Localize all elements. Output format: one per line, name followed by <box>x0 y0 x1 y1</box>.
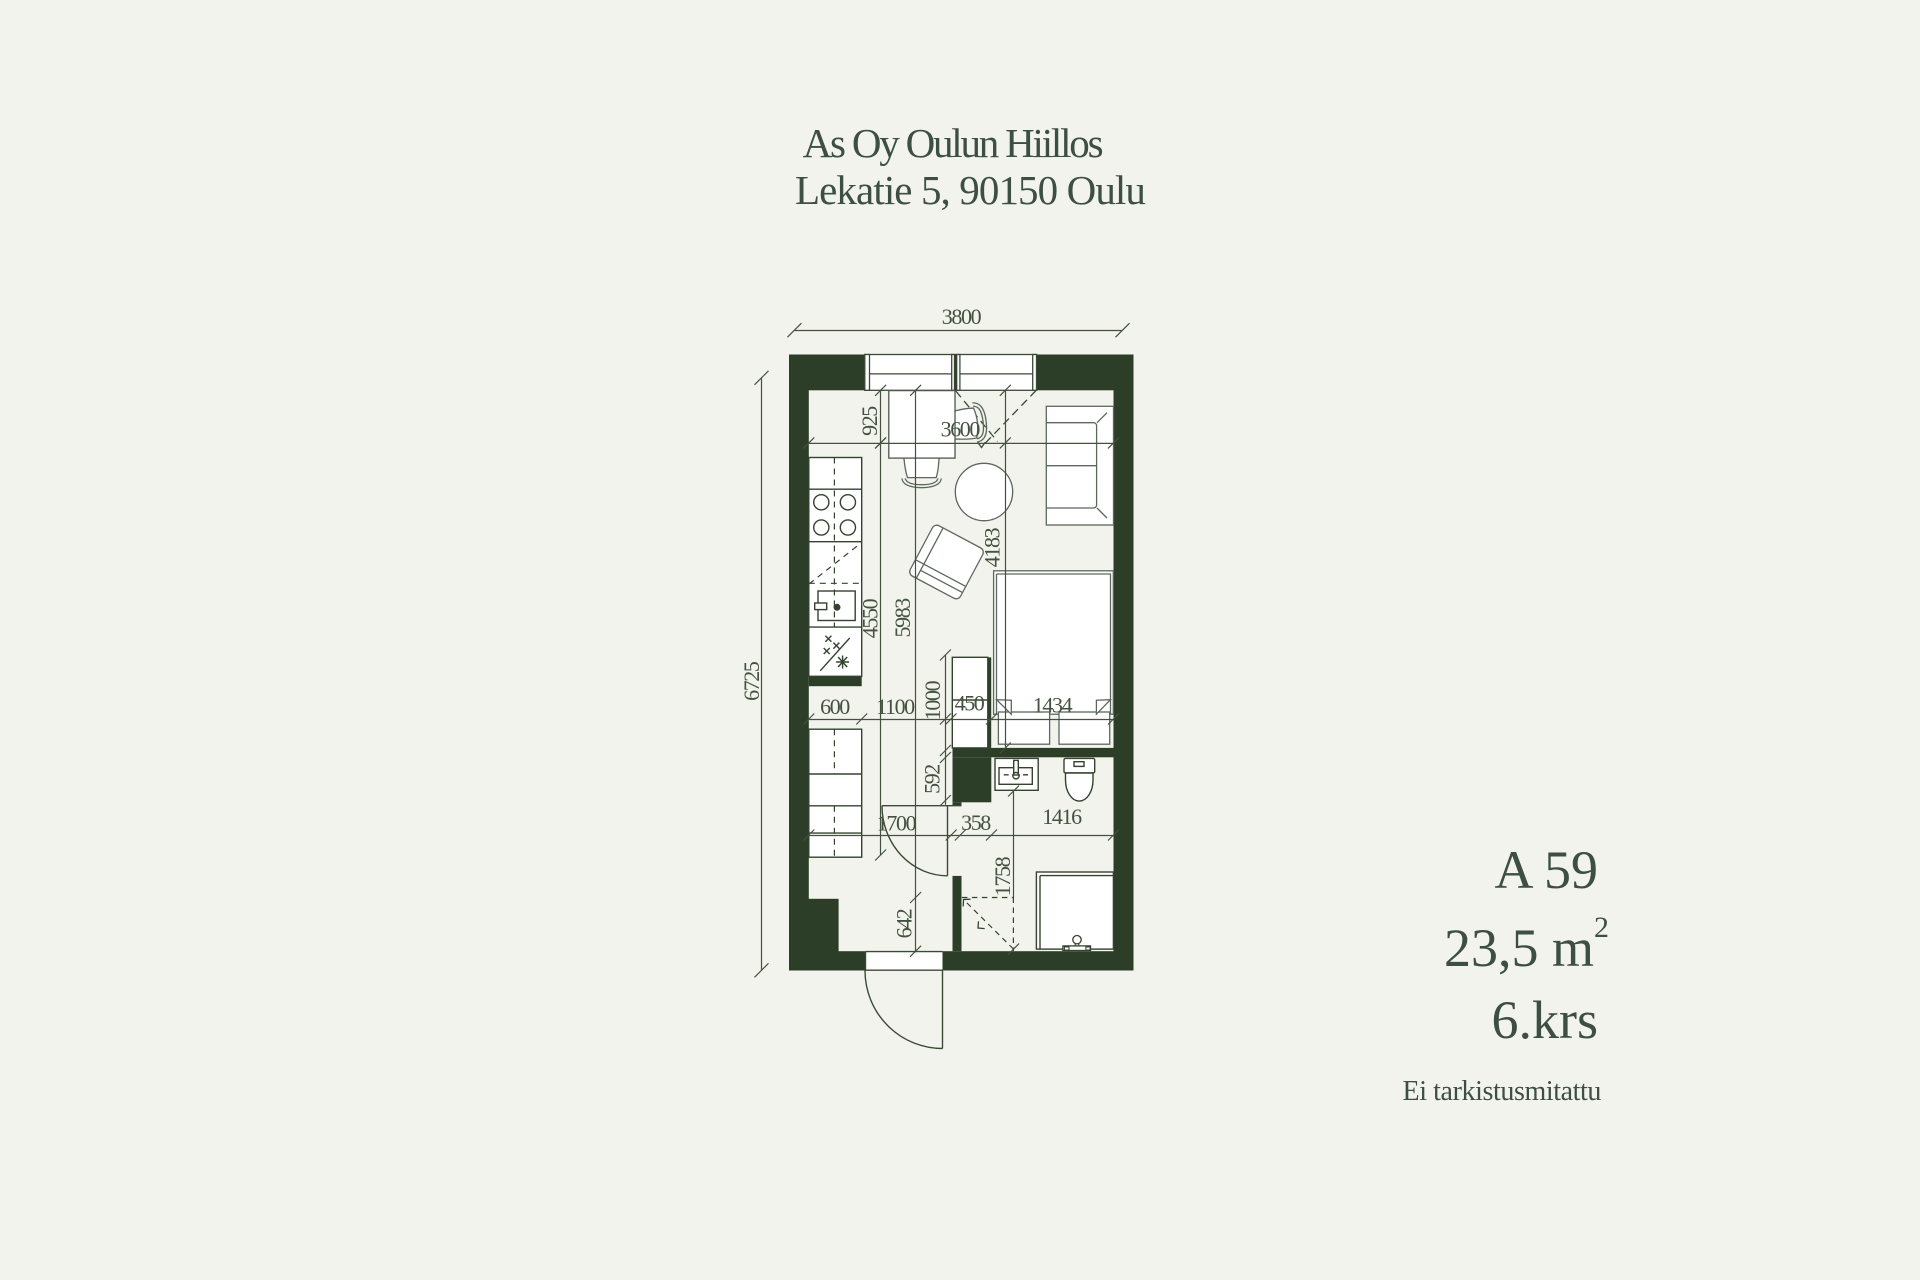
svg-text:3800: 3800 <box>942 304 982 329</box>
svg-text:5983: 5983 <box>890 598 915 638</box>
svg-text:592: 592 <box>919 765 944 794</box>
svg-text:600: 600 <box>820 694 850 719</box>
svg-text:6725: 6725 <box>739 661 764 701</box>
svg-text:358: 358 <box>961 810 991 835</box>
svg-text:1416: 1416 <box>1042 804 1082 829</box>
svg-text:4550: 4550 <box>858 598 883 638</box>
svg-text:1700: 1700 <box>877 811 917 836</box>
svg-text:925: 925 <box>857 406 882 436</box>
svg-text:3600: 3600 <box>941 417 981 442</box>
svg-text:Ei tarkistusmitattu: Ei tarkistusmitattu <box>1403 1076 1602 1107</box>
svg-text:4183: 4183 <box>979 527 1004 567</box>
svg-text:23,5 m2: 23,5 m2 <box>1444 911 1609 978</box>
svg-text:1100: 1100 <box>876 694 915 719</box>
svg-text:As Oy Oulun Hiillos: As Oy Oulun Hiillos <box>803 120 1103 166</box>
svg-text:6.krs: 6.krs <box>1492 990 1599 1050</box>
svg-text:Lekatie 5, 90150 Oulu: Lekatie 5, 90150 Oulu <box>795 167 1145 213</box>
svg-text:450: 450 <box>955 691 985 716</box>
svg-text:1758: 1758 <box>990 856 1015 896</box>
svg-text:642: 642 <box>892 909 917 938</box>
svg-text:1434: 1434 <box>1033 693 1073 718</box>
svg-text:A 59: A 59 <box>1494 840 1598 900</box>
svg-text:1000: 1000 <box>920 680 945 720</box>
